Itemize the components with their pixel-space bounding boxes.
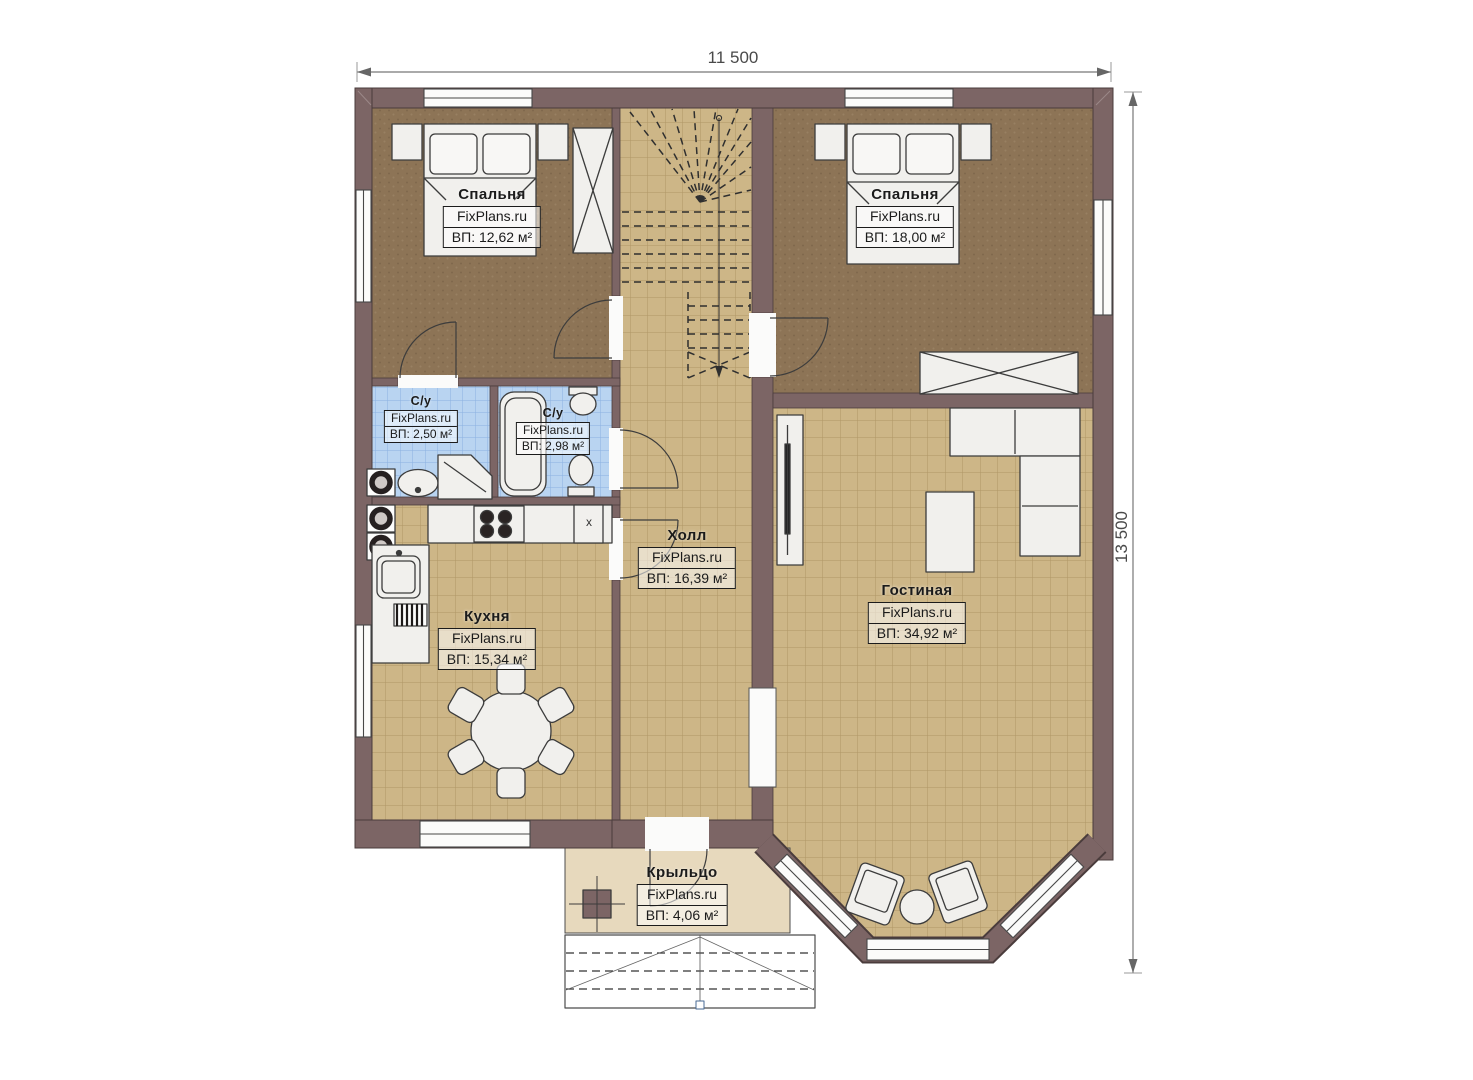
wardrobe-left	[573, 128, 613, 253]
window-bedroom-left-side	[356, 190, 371, 302]
stove	[474, 506, 524, 542]
window-bedroom-right-side	[1094, 200, 1112, 315]
tv-stand	[777, 415, 803, 565]
window-bedroom-left-top	[424, 89, 532, 107]
coffee-table	[926, 492, 974, 572]
dimension-height-label: 13 500	[1112, 511, 1132, 563]
bed-double-right	[847, 124, 959, 264]
floor-plan-canvas: 11 500 13 500 x Спальня FixPlans.ru ВП: …	[0, 0, 1473, 1080]
toilet-bottom	[568, 455, 594, 496]
dimension-width-label: 11 500	[708, 48, 759, 68]
window-kitchen-side	[356, 625, 371, 737]
wardrobe-right	[920, 352, 1078, 394]
floor-hall	[620, 108, 752, 820]
side-table	[900, 890, 934, 924]
kitchen-appliance-marker: x	[586, 515, 592, 529]
porch-steps	[565, 935, 815, 1009]
bed-double-left	[424, 124, 536, 256]
opening-hall-living	[749, 688, 776, 787]
window-bedroom-right-top	[845, 89, 953, 107]
toilet-top	[569, 387, 597, 415]
window-kitchen-bottom	[420, 821, 530, 847]
bathtub	[500, 392, 546, 496]
sink-cabinet	[372, 545, 429, 663]
floor-plan-drawing	[0, 0, 1473, 1080]
window-bay-bottom	[867, 939, 989, 960]
washbasin	[398, 470, 438, 497]
